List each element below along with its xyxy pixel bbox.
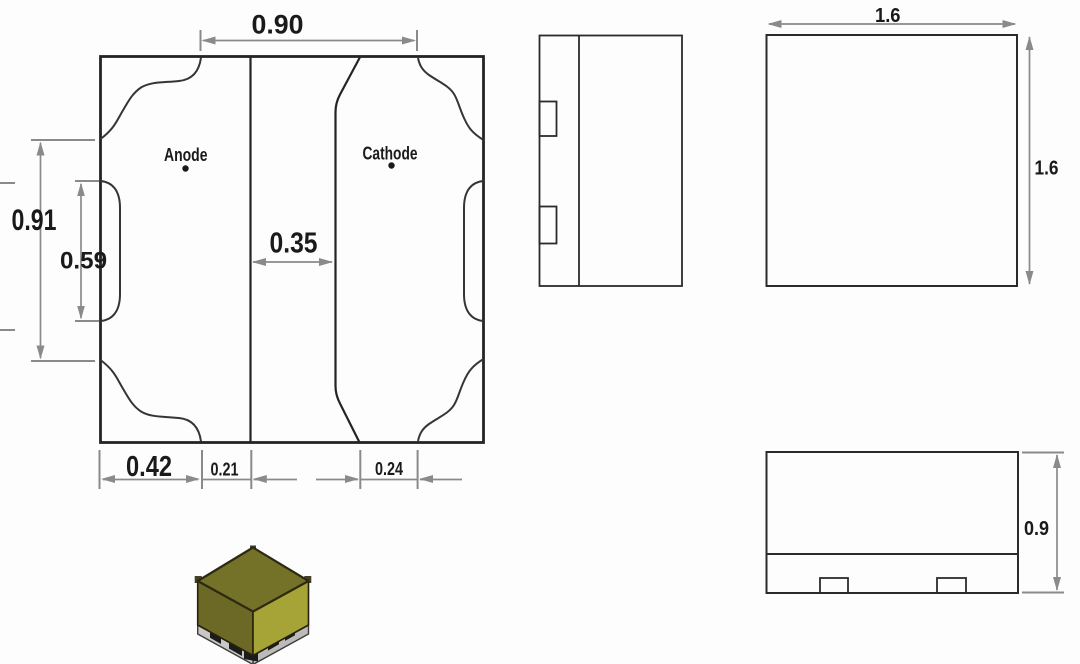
svg-text:1.6: 1.6 [1035,158,1059,180]
svg-text:1.6: 1.6 [875,5,901,27]
svg-text:0.9: 0.9 [1024,518,1049,540]
svg-text:0.42: 0.42 [126,451,172,483]
svg-text:0.59: 0.59 [60,248,107,275]
svg-text:0.91: 0.91 [12,204,57,237]
svg-text:0.21: 0.21 [211,460,239,480]
svg-text:0.24: 0.24 [375,459,403,479]
svg-text:Cathode: Cathode [363,144,418,164]
svg-text:Anode: Anode [164,145,208,165]
svg-text:0.90: 0.90 [252,10,304,40]
svg-text:0.35: 0.35 [270,228,318,260]
